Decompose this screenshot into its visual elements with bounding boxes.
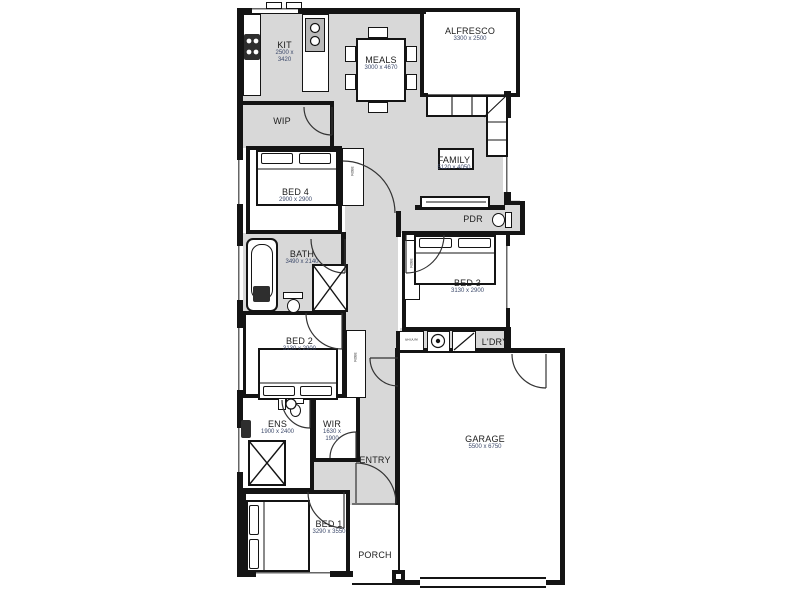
room-label-kit: KIT 2500 x 3420 <box>262 40 307 64</box>
bed-lines <box>257 169 495 570</box>
door-arcs <box>282 107 546 528</box>
plan-linework <box>0 0 800 600</box>
room-label-bed4: BED 4 2900 x 2900 <box>268 187 323 204</box>
room-label-ldry: L'DRY <box>472 337 518 347</box>
trough-drainer <box>454 333 474 350</box>
room-label-ens: ENS 1900 x 2400 <box>255 419 300 436</box>
robe-label: ROBE <box>351 163 354 180</box>
room-label-pdr: PDR <box>455 214 491 224</box>
room-label-bath: BATH 3490 x 2140 <box>277 249 327 266</box>
room-label-wir: WIR 1630 x 1900 <box>313 419 351 443</box>
room-label-bed1: BED 1 3290 x 3550 <box>303 519 355 536</box>
floor-plan: KIT 2500 x 3420 MEALS 3000 x 4670 ALFRES… <box>0 0 800 600</box>
room-label-broom: BROOM <box>404 339 419 343</box>
sofa-detail <box>426 96 506 202</box>
room-label-garage: GARAGE 5500 x 6750 <box>450 434 520 451</box>
room-label-family: FAMILY 5120 x 4050 <box>424 155 484 172</box>
shower-x-icons <box>249 265 347 485</box>
porch-post <box>392 570 405 583</box>
room-label-meals: MEALS 3000 x 4670 <box>350 55 412 72</box>
room-label-porch: PORCH <box>348 550 402 560</box>
room-label-wip: WIP <box>262 116 302 126</box>
porch-post-cap <box>396 574 401 579</box>
cooktop-icon <box>247 39 259 55</box>
robe-label: ROBE <box>410 255 413 272</box>
room-label-alfresco: ALFRESCO 3300 x 2500 <box>434 26 506 43</box>
room-label-entry: ENTRY <box>350 455 400 465</box>
washer-icon <box>432 333 475 350</box>
robe-label: ROBE <box>354 349 357 366</box>
room-label-bed3: BED 3 3130 x 2900 <box>440 278 495 295</box>
room-label-bed2: BED 2 3130 x 2900 <box>272 336 327 353</box>
